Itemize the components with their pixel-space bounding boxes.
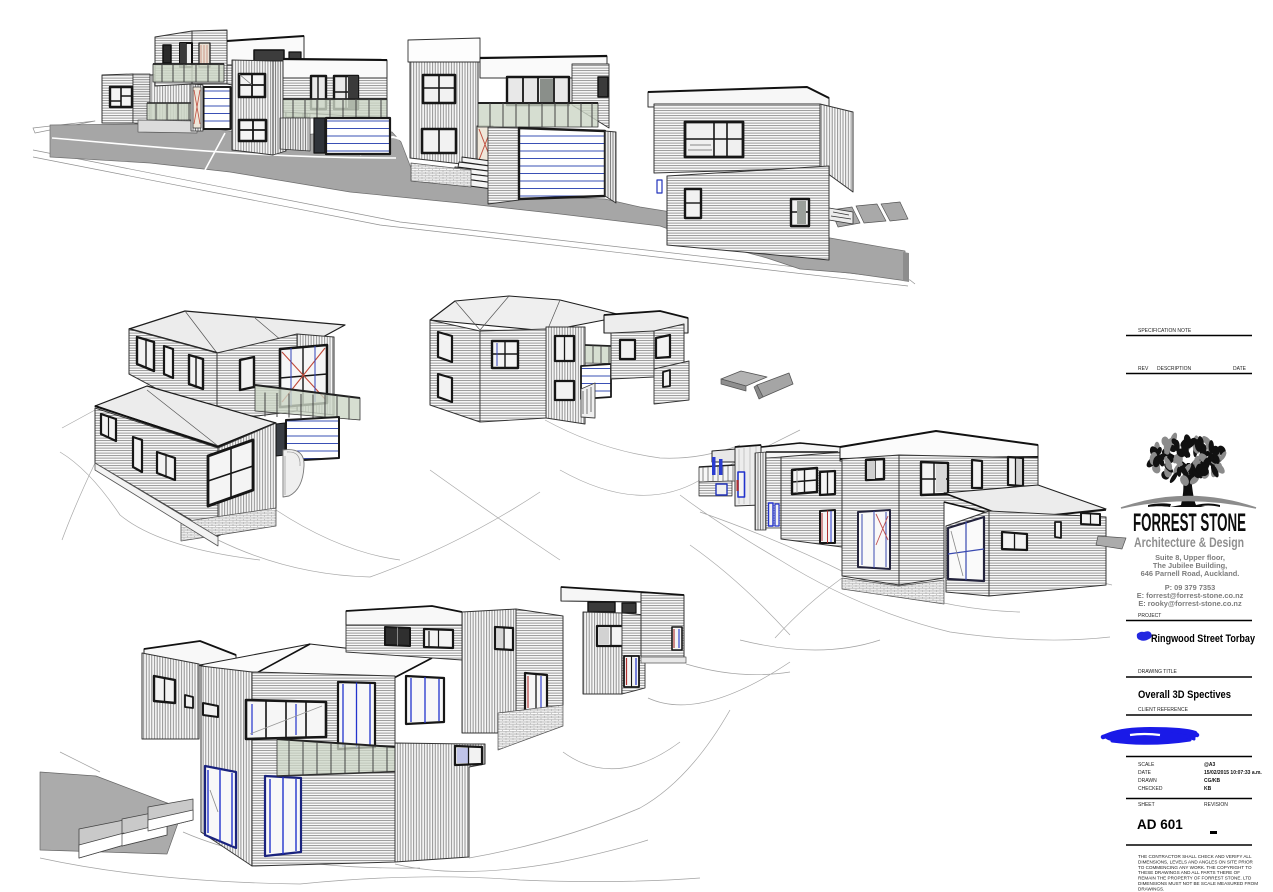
svg-text:DIMENSIONS MUST NOT BE SCALE M: DIMENSIONS MUST NOT BE SCALE MEASURED FR… [1138, 881, 1258, 886]
svg-text:CLIENT REFERENCE: CLIENT REFERENCE [1138, 707, 1189, 713]
svg-text:DESCRIPTION: DESCRIPTION [1157, 366, 1192, 372]
svg-text:SCALE: SCALE [1138, 762, 1155, 768]
svg-text:@A3: @A3 [1204, 762, 1215, 768]
svg-text:SPECIFICATION NOTE: SPECIFICATION NOTE [1138, 328, 1192, 334]
svg-text:DRAWN: DRAWN [1138, 778, 1157, 784]
svg-text:THESE DRAWINGS AND ALL PARTS T: THESE DRAWINGS AND ALL PARTS THERE OF [1138, 870, 1240, 875]
svg-text:DRAWINGS.: DRAWINGS. [1138, 886, 1164, 891]
svg-text:REMAIN THE PROPERTY OF FORREST: REMAIN THE PROPERTY OF FORREST STONE. LT… [1138, 876, 1252, 881]
svg-text:CG/KB: CG/KB [1204, 778, 1221, 784]
svg-text:SHEET: SHEET [1138, 802, 1155, 808]
svg-text:DRAWING TITLE: DRAWING TITLE [1138, 669, 1178, 675]
svg-text:646 Parnell Road, Auckland.: 646 Parnell Road, Auckland. [1141, 569, 1240, 578]
svg-text:CHECKED: CHECKED [1138, 786, 1163, 792]
svg-text:15/02/2015 10:07:33 a.m.: 15/02/2015 10:07:33 a.m. [1204, 770, 1262, 776]
svg-text:Architecture & Design: Architecture & Design [1134, 534, 1244, 550]
svg-text:REVISION: REVISION [1204, 802, 1228, 808]
svg-text:TO COMMENCING ANY WORK. THE CO: TO COMMENCING ANY WORK. THE COPYRIGHT TO [1138, 865, 1252, 870]
svg-text:REV: REV [1138, 366, 1149, 372]
svg-text:DATE: DATE [1233, 366, 1247, 372]
svg-text:Ringwood Street Torbay: Ringwood Street Torbay [1151, 633, 1256, 645]
svg-text:AD 601: AD 601 [1137, 817, 1183, 832]
svg-text:KB: KB [1204, 786, 1212, 792]
svg-text:THE CONTRACTOR SHALL CHECK AND: THE CONTRACTOR SHALL CHECK AND VERIFY AL… [1138, 854, 1252, 859]
svg-text:FORREST STONE: FORREST STONE [1133, 509, 1246, 537]
svg-text:Overall 3D Spectives: Overall 3D Spectives [1138, 689, 1231, 701]
svg-text:PROJECT: PROJECT [1138, 613, 1161, 619]
svg-text:DATE: DATE [1138, 770, 1152, 776]
svg-text:E: rooky@forrest-stone.co.nz: E: rooky@forrest-stone.co.nz [1138, 599, 1242, 608]
svg-text:DIMENSIONS, LEVELS AND ANGLES: DIMENSIONS, LEVELS AND ANGLES ON SITE PR… [1138, 859, 1254, 864]
